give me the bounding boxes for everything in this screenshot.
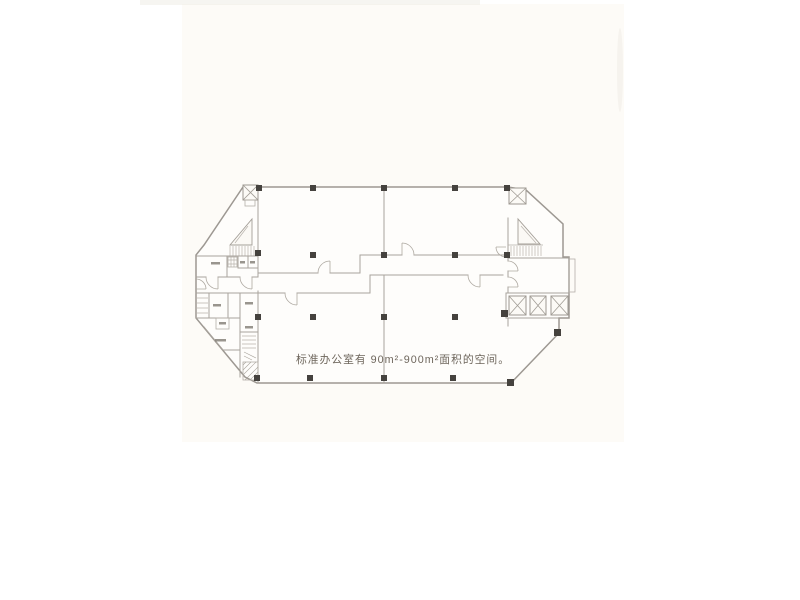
- floor-plan-photo: 标准办公室有 90m²-900m²面积的空间。: [0, 0, 800, 600]
- column: [501, 310, 508, 317]
- room-label-mark: [213, 304, 221, 307]
- scan-streak: [140, 0, 480, 5]
- column: [452, 185, 458, 191]
- column: [554, 329, 561, 336]
- column: [381, 185, 387, 191]
- column: [310, 252, 316, 258]
- floor-plan-drawing: 标准办公室有 90m²-900m²面积的空间。: [0, 0, 800, 600]
- column: [307, 375, 313, 381]
- room-label-mark: [211, 262, 220, 265]
- shaft-top-right-icon: [509, 188, 526, 204]
- room-label-mark: [240, 261, 245, 264]
- column: [504, 252, 510, 258]
- elevator-car-icon: [530, 296, 546, 315]
- elevator-car-icon: [551, 296, 568, 315]
- room-label-mark: [245, 302, 253, 305]
- column: [452, 314, 458, 320]
- column: [254, 375, 260, 381]
- room-label-mark: [215, 339, 226, 342]
- column: [256, 185, 262, 191]
- column: [255, 314, 261, 320]
- column: [310, 314, 316, 320]
- scan-smudge: [617, 28, 623, 112]
- room-label-mark: [245, 326, 253, 329]
- elevator-car-icon: [509, 296, 526, 315]
- column: [255, 250, 261, 256]
- column: [381, 375, 387, 381]
- caption-text: 标准办公室有 90m²-900m²面积的空间。: [296, 352, 510, 366]
- column: [381, 252, 387, 258]
- column: [507, 379, 514, 386]
- column: [452, 252, 458, 258]
- column: [504, 185, 510, 191]
- column: [450, 375, 456, 381]
- room-label-mark: [219, 322, 226, 325]
- room-label-mark: [250, 261, 255, 264]
- column: [381, 314, 387, 320]
- column: [310, 185, 316, 191]
